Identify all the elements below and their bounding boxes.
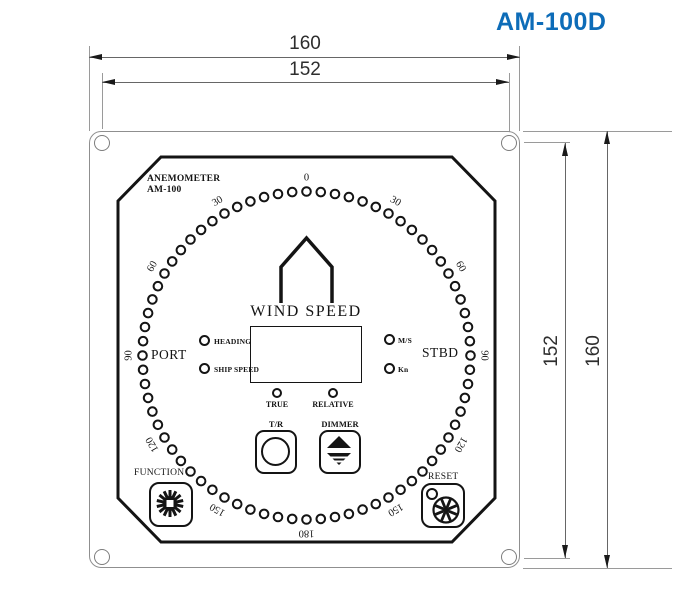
extension-line xyxy=(524,558,570,559)
dimmer-button[interactable] xyxy=(319,430,361,474)
dim-right-inner-label: 152 xyxy=(541,329,563,373)
true-indicator xyxy=(272,388,282,398)
dimension-line-right-outer xyxy=(607,131,608,568)
dimmer-button-label: DIMMER xyxy=(321,419,358,429)
reset-knob[interactable] xyxy=(421,483,465,528)
function-knob-label: FUNCTION xyxy=(134,468,184,478)
ship-speed-led-label: SHIP SPEED xyxy=(214,365,259,374)
dim-right-outer-label: 160 xyxy=(583,329,605,373)
kn-led-label: Kn xyxy=(398,365,408,374)
tr-button-face xyxy=(261,437,290,466)
screw-hole xyxy=(94,135,110,151)
stbd-label: STBD xyxy=(422,345,459,361)
arrowhead xyxy=(507,54,520,60)
screw-hole xyxy=(501,549,517,565)
dim-top-inner-label: 152 xyxy=(289,59,321,81)
relative-indicator-label: RELATIVE xyxy=(312,400,353,409)
dimmer-updown-icon xyxy=(324,434,354,468)
ms-led-label: M/S xyxy=(398,336,412,345)
arrowhead xyxy=(562,545,568,558)
digital-display xyxy=(250,326,362,383)
reset-knob-label: RESET xyxy=(428,472,459,482)
dim-top-outer-label: 160 xyxy=(289,33,321,55)
true-indicator-label: TRUE xyxy=(266,400,288,409)
arrowhead xyxy=(604,131,610,144)
arrowhead xyxy=(496,79,509,85)
function-knob[interactable] xyxy=(149,482,193,527)
heading-led-label: HEADING xyxy=(214,337,251,346)
arrowhead xyxy=(562,143,568,156)
nameplate: ANEMOMETER AM-100 xyxy=(147,174,220,195)
drawing-canvas: AM-100D 160 152 152 160 0306090120150180… xyxy=(0,0,675,591)
nameplate-line1: ANEMOMETER xyxy=(147,174,220,185)
nameplate-line2: AM-100 xyxy=(147,185,220,196)
heading-led xyxy=(199,335,210,346)
extension-line xyxy=(509,73,510,135)
screw-hole xyxy=(94,549,110,565)
dimension-line-top-inner xyxy=(102,82,509,83)
kn-led xyxy=(384,363,395,374)
wind-speed-label: WIND SPEED xyxy=(250,303,361,321)
tr-button[interactable] xyxy=(255,430,297,474)
screw-hole xyxy=(501,135,517,151)
reset-knob-icon xyxy=(427,491,465,529)
arrowhead xyxy=(102,79,115,85)
extension-line xyxy=(523,568,672,569)
ms-led xyxy=(384,334,395,345)
function-knob-icon xyxy=(151,484,189,523)
model-title: AM-100D xyxy=(496,8,606,37)
relative-indicator xyxy=(328,388,338,398)
dimension-line-right-inner xyxy=(565,143,566,558)
arrowhead xyxy=(604,555,610,568)
dimension-line-top-outer xyxy=(89,57,520,58)
ship-speed-led xyxy=(199,363,210,374)
tr-button-label: T/R xyxy=(269,419,283,429)
port-label: PORT xyxy=(151,347,187,363)
extension-line xyxy=(523,131,672,132)
arrowhead xyxy=(89,54,102,60)
